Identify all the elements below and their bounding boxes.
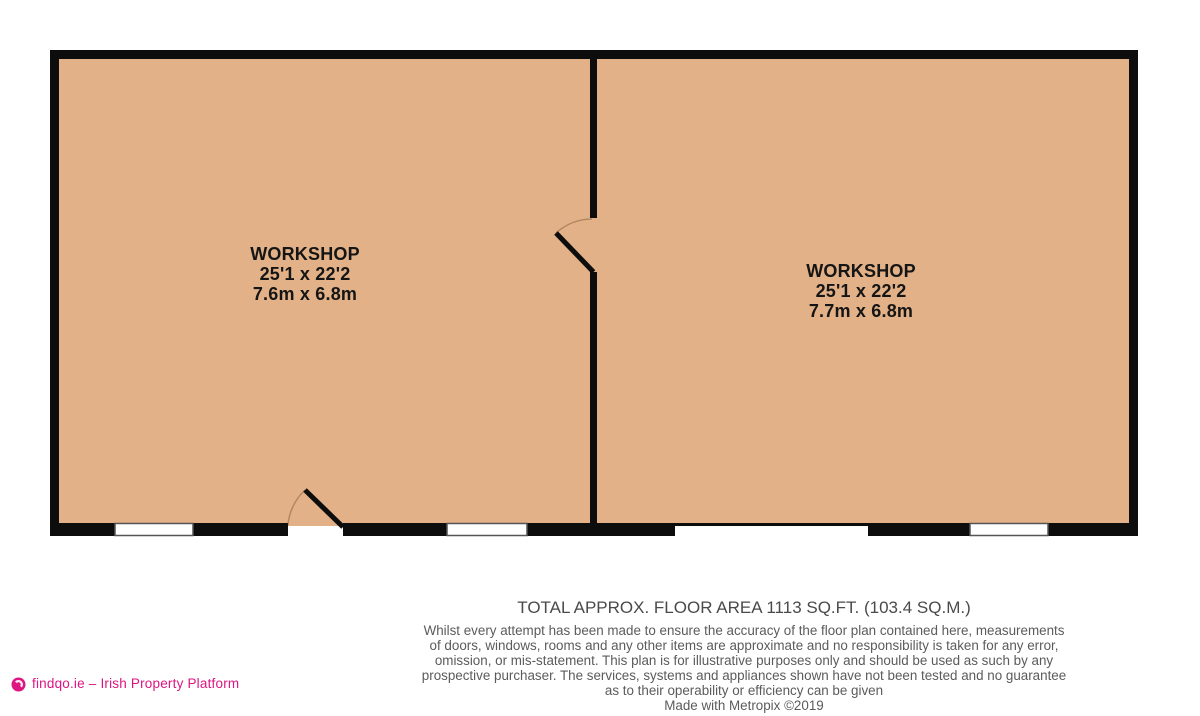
room-label-workshop-right: WORKSHOP 25'1 x 22'2 7.7m x 6.8m bbox=[806, 261, 916, 321]
window bbox=[447, 524, 527, 536]
room-name: WORKSHOP bbox=[806, 261, 916, 281]
wall-bottom-seg bbox=[193, 523, 288, 536]
room-dims-metric: 7.6m x 6.8m bbox=[250, 284, 360, 304]
disclaimer-line: Whilst every attempt has been made to en… bbox=[414, 624, 1074, 639]
interior-wall bbox=[590, 59, 597, 523]
wall-top bbox=[50, 50, 1138, 59]
interior-wall-lower bbox=[590, 272, 597, 523]
room-dims-imperial: 25'1 x 22'2 bbox=[250, 264, 360, 284]
wall-opening bbox=[675, 523, 868, 526]
room-dims-imperial: 25'1 x 22'2 bbox=[806, 281, 916, 301]
disclaimer-line: as to their operability or efficiency ca… bbox=[414, 684, 1074, 699]
wall-right bbox=[1129, 59, 1138, 536]
brand-text: findqo.ie – Irish Property Platform bbox=[32, 675, 239, 693]
total-floor-area: TOTAL APPROX. FLOOR AREA 1113 SQ.FT. (10… bbox=[414, 598, 1074, 618]
findqo-branding: findqo.ie – Irish Property Platform bbox=[11, 675, 239, 693]
disclaimer-line: omission, or mis-statement. This plan is… bbox=[414, 654, 1074, 669]
wall-left bbox=[50, 59, 59, 536]
wall-bottom-seg bbox=[527, 523, 675, 536]
made-with-credit: Made with Metropix ©2019 bbox=[414, 699, 1074, 714]
room-name: WORKSHOP bbox=[250, 244, 360, 264]
findqo-logo-icon bbox=[11, 677, 26, 692]
window bbox=[115, 524, 193, 536]
window bbox=[970, 524, 1048, 536]
disclaimer-line: prospective purchaser. The services, sys… bbox=[414, 669, 1074, 684]
disclaimer-line: of doors, windows, rooms and any other i… bbox=[414, 639, 1074, 654]
wall-bottom-seg bbox=[343, 523, 447, 536]
interior-wall-upper bbox=[590, 59, 597, 218]
wall-bottom-seg bbox=[868, 523, 970, 536]
room-dims-metric: 7.7m x 6.8m bbox=[806, 301, 916, 321]
footer: TOTAL APPROX. FLOOR AREA 1113 SQ.FT. (10… bbox=[414, 598, 1074, 713]
wall-bottom-seg bbox=[59, 523, 115, 536]
wall-bottom-seg bbox=[1048, 523, 1129, 536]
room-label-workshop-left: WORKSHOP 25'1 x 22'2 7.6m x 6.8m bbox=[250, 244, 360, 304]
